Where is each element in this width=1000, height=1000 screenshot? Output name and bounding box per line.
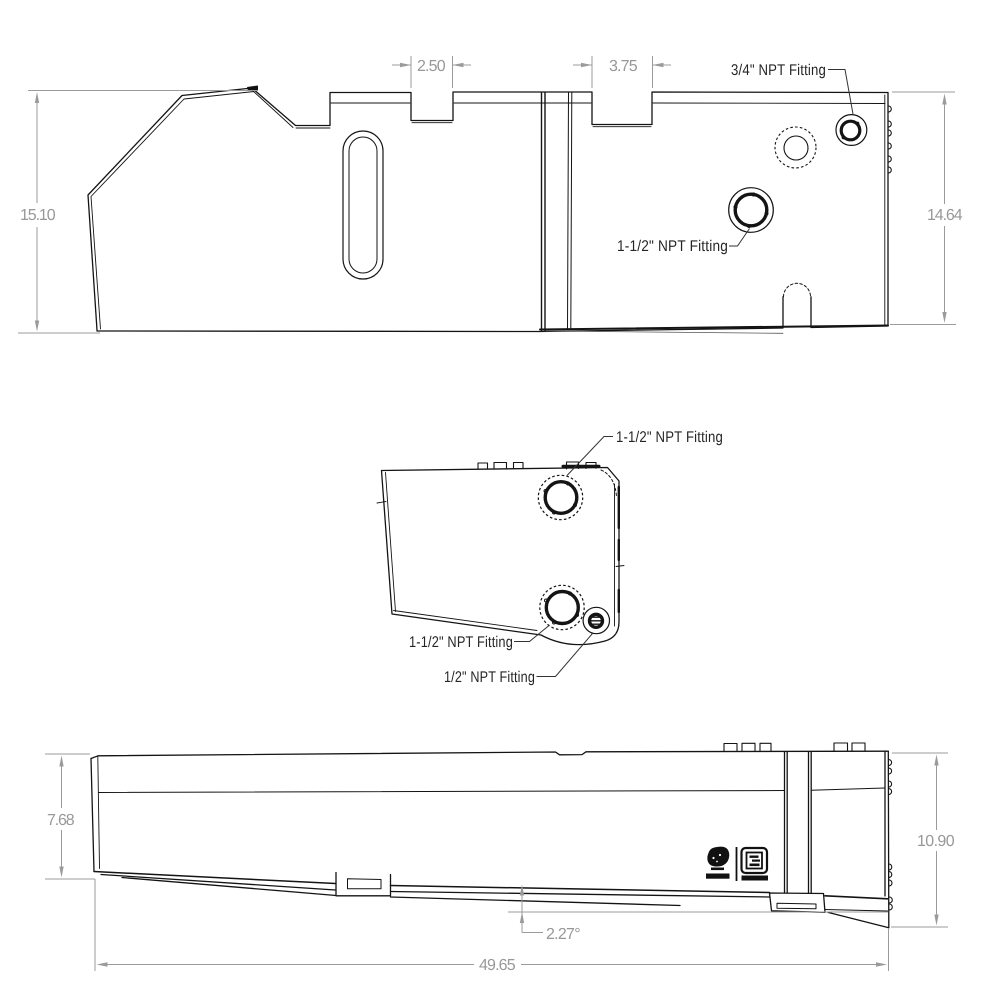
- svg-text:1-1/2" NPT Fitting: 1-1/2" NPT Fitting: [409, 634, 513, 651]
- svg-text:1-1/2" NPT Fitting: 1-1/2" NPT Fitting: [616, 429, 723, 446]
- svg-text:3.75: 3.75: [609, 58, 638, 75]
- svg-text:2.50: 2.50: [417, 58, 446, 75]
- svg-text:14.64: 14.64: [927, 207, 963, 224]
- svg-text:10.90: 10.90: [917, 833, 955, 850]
- svg-text:3/4" NPT Fitting: 3/4" NPT Fitting: [731, 62, 826, 79]
- svg-text:1/2" NPT Fitting: 1/2" NPT Fitting: [444, 669, 535, 686]
- svg-text:7.68: 7.68: [47, 812, 75, 829]
- svg-text:15.10: 15.10: [20, 207, 56, 224]
- svg-text:1-1/2" NPT Fitting: 1-1/2" NPT Fitting: [617, 238, 728, 255]
- svg-text:49.65: 49.65: [479, 957, 516, 974]
- svg-text:2.27°: 2.27°: [546, 926, 581, 943]
